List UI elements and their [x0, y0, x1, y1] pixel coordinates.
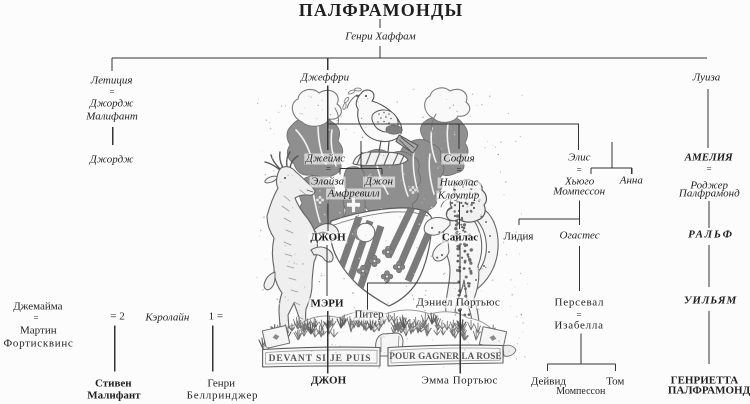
svg-text:POUR GAGNER LA ROSE: POUR GAGNER LA ROSE: [389, 351, 501, 361]
svg-text:DEVANT SI JE PUIS: DEVANT SI JE PUIS: [269, 354, 372, 364]
